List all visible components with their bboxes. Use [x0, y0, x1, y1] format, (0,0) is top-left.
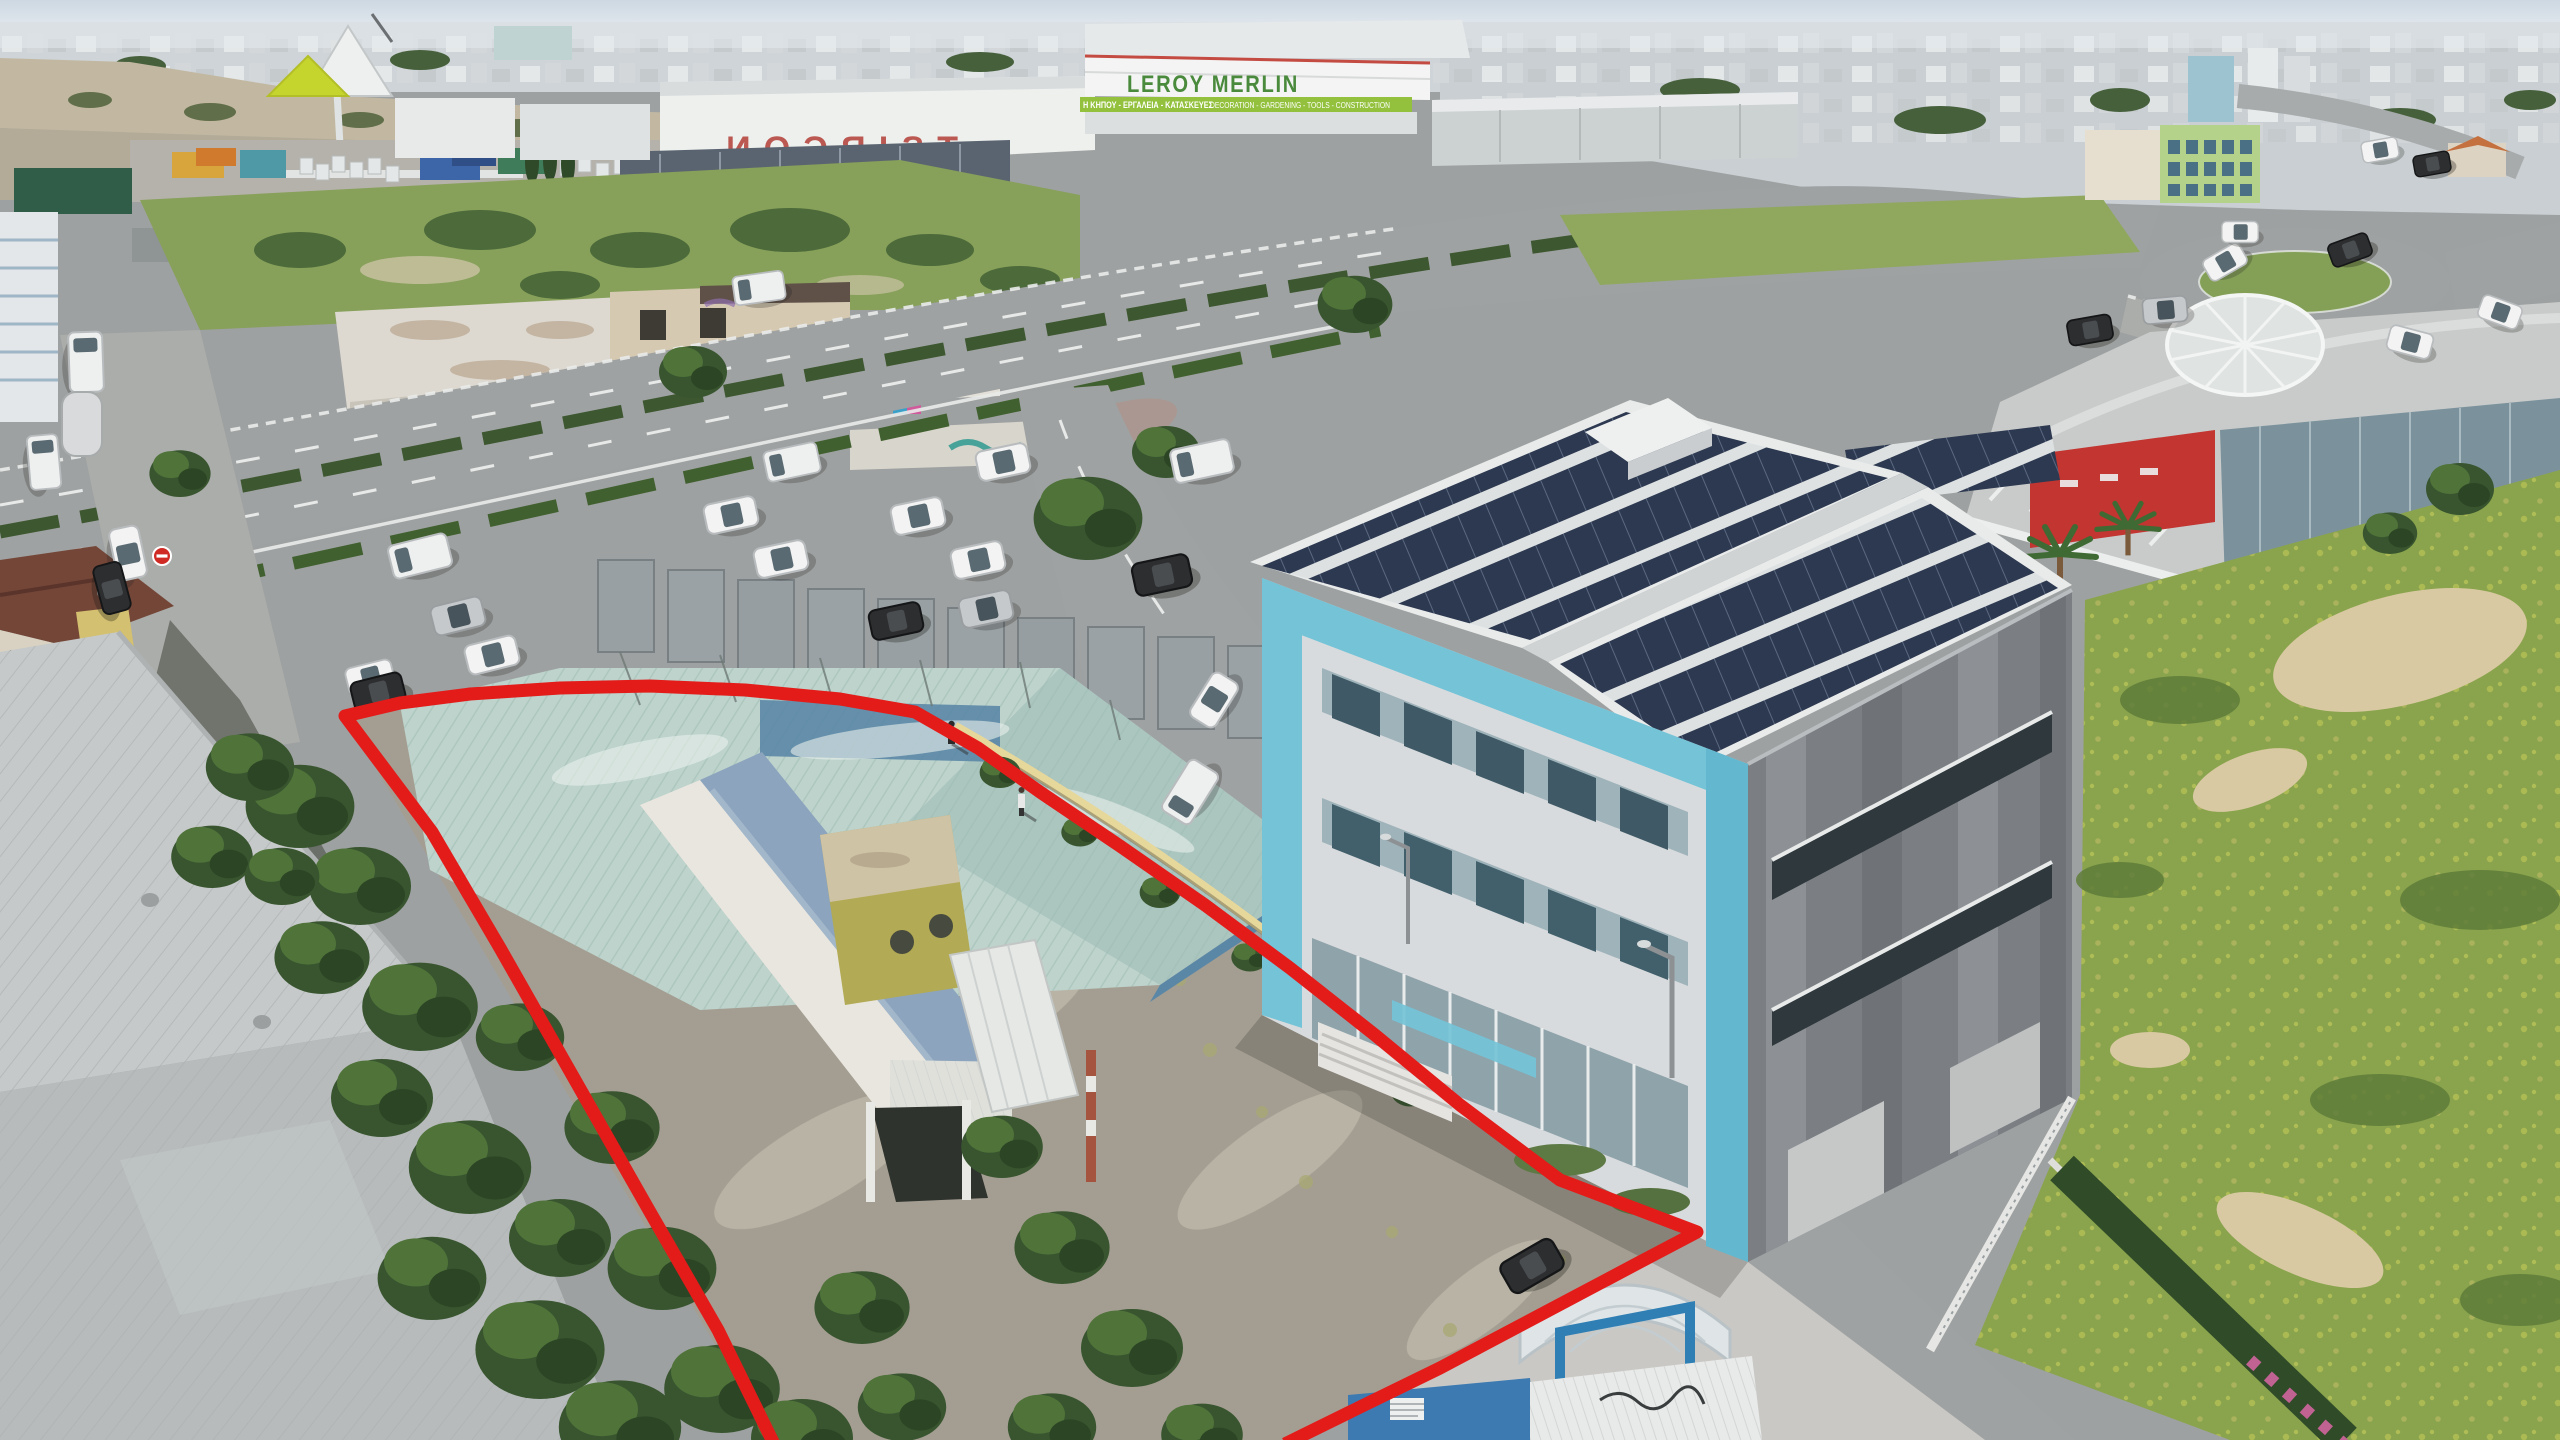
- yellow-building: [820, 815, 975, 1005]
- leroy-banner-left-text: Η ΚΗΠΟΥ - ΕΡΓΑΛΕΙΑ - ΚΑΤΑΣΚΕΥΕΣ: [1083, 100, 1213, 110]
- aerial-photo: TSIRCON LEROY MERLIN Η ΚΗΠΟΥ - ΕΡΓΑΛΕΙΑ …: [0, 0, 2560, 1440]
- gray-warehouse: [1432, 92, 1798, 166]
- leroy-banner-right-text: DECORATION - GARDENING - TOOLS - CONSTRU…: [1210, 101, 1390, 110]
- screenshot-root: TSIRCON LEROY MERLIN Η ΚΗΠΟΥ - ΕΡΓΑΛΕΙΑ …: [0, 0, 2560, 1440]
- leroy-merlin-roof-text: LEROY MERLIN: [1127, 71, 1299, 98]
- leroy-merlin-store: LEROY MERLIN Η ΚΗΠΟΥ - ΕΡΓΑΛΕΙΑ - ΚΑΤΑΣΚ…: [1080, 20, 1470, 134]
